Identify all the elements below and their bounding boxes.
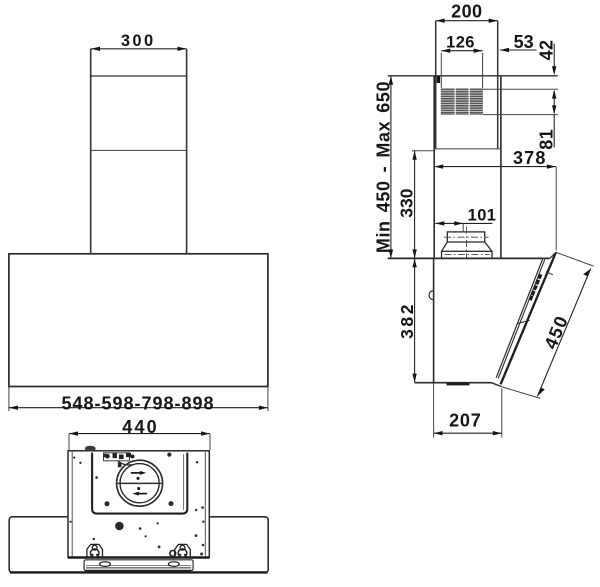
svg-text:300: 300 bbox=[121, 32, 156, 50]
svg-text:378: 378 bbox=[513, 148, 547, 168]
svg-text:200: 200 bbox=[451, 2, 482, 22]
svg-text:126: 126 bbox=[446, 34, 475, 52]
svg-text:330: 330 bbox=[397, 188, 417, 217]
svg-text:548-598-798-898: 548-598-798-898 bbox=[61, 393, 214, 413]
svg-text:81: 81 bbox=[537, 129, 557, 150]
svg-text:382: 382 bbox=[397, 302, 417, 339]
svg-text:53: 53 bbox=[514, 32, 534, 52]
svg-text:42: 42 bbox=[537, 40, 557, 61]
svg-text:207: 207 bbox=[449, 411, 481, 431]
svg-text:101: 101 bbox=[468, 206, 497, 224]
